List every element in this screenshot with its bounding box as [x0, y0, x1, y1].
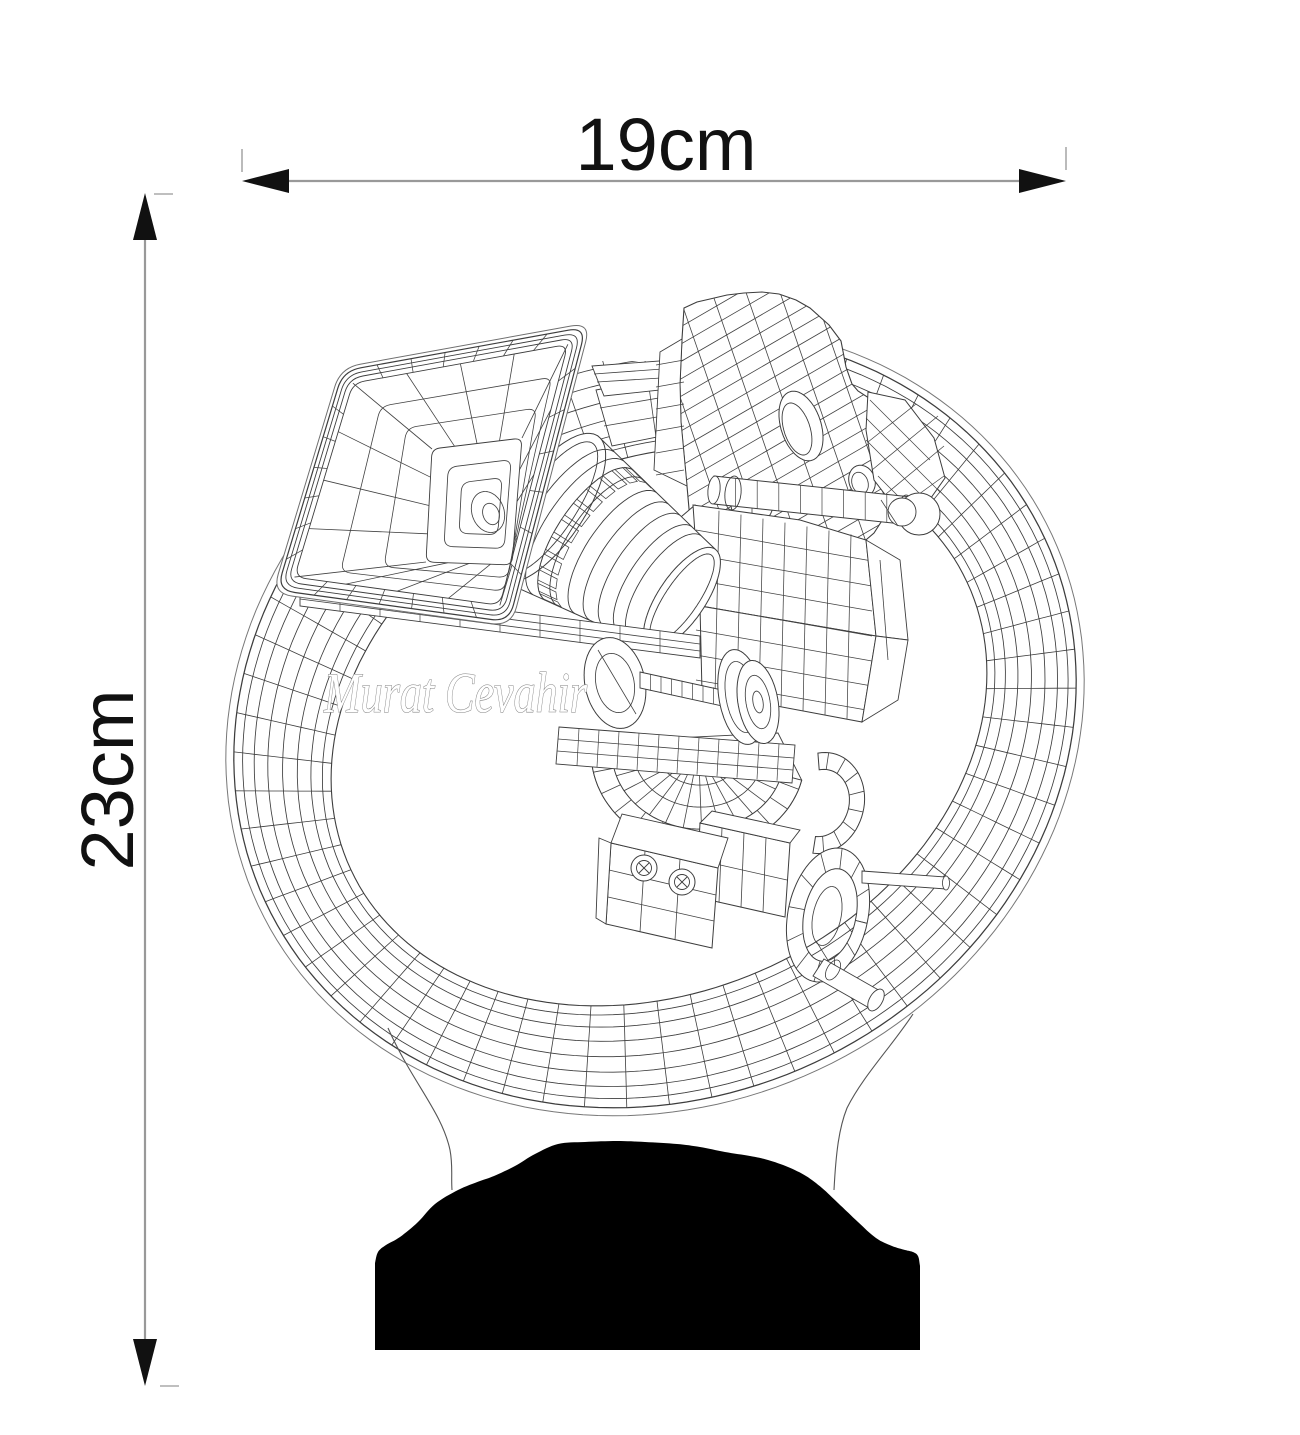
svg-text:19cm: 19cm [576, 103, 757, 186]
svg-text:Murat Cevahir: Murat Cevahir [323, 662, 587, 725]
svg-text:23cm: 23cm [66, 690, 149, 871]
